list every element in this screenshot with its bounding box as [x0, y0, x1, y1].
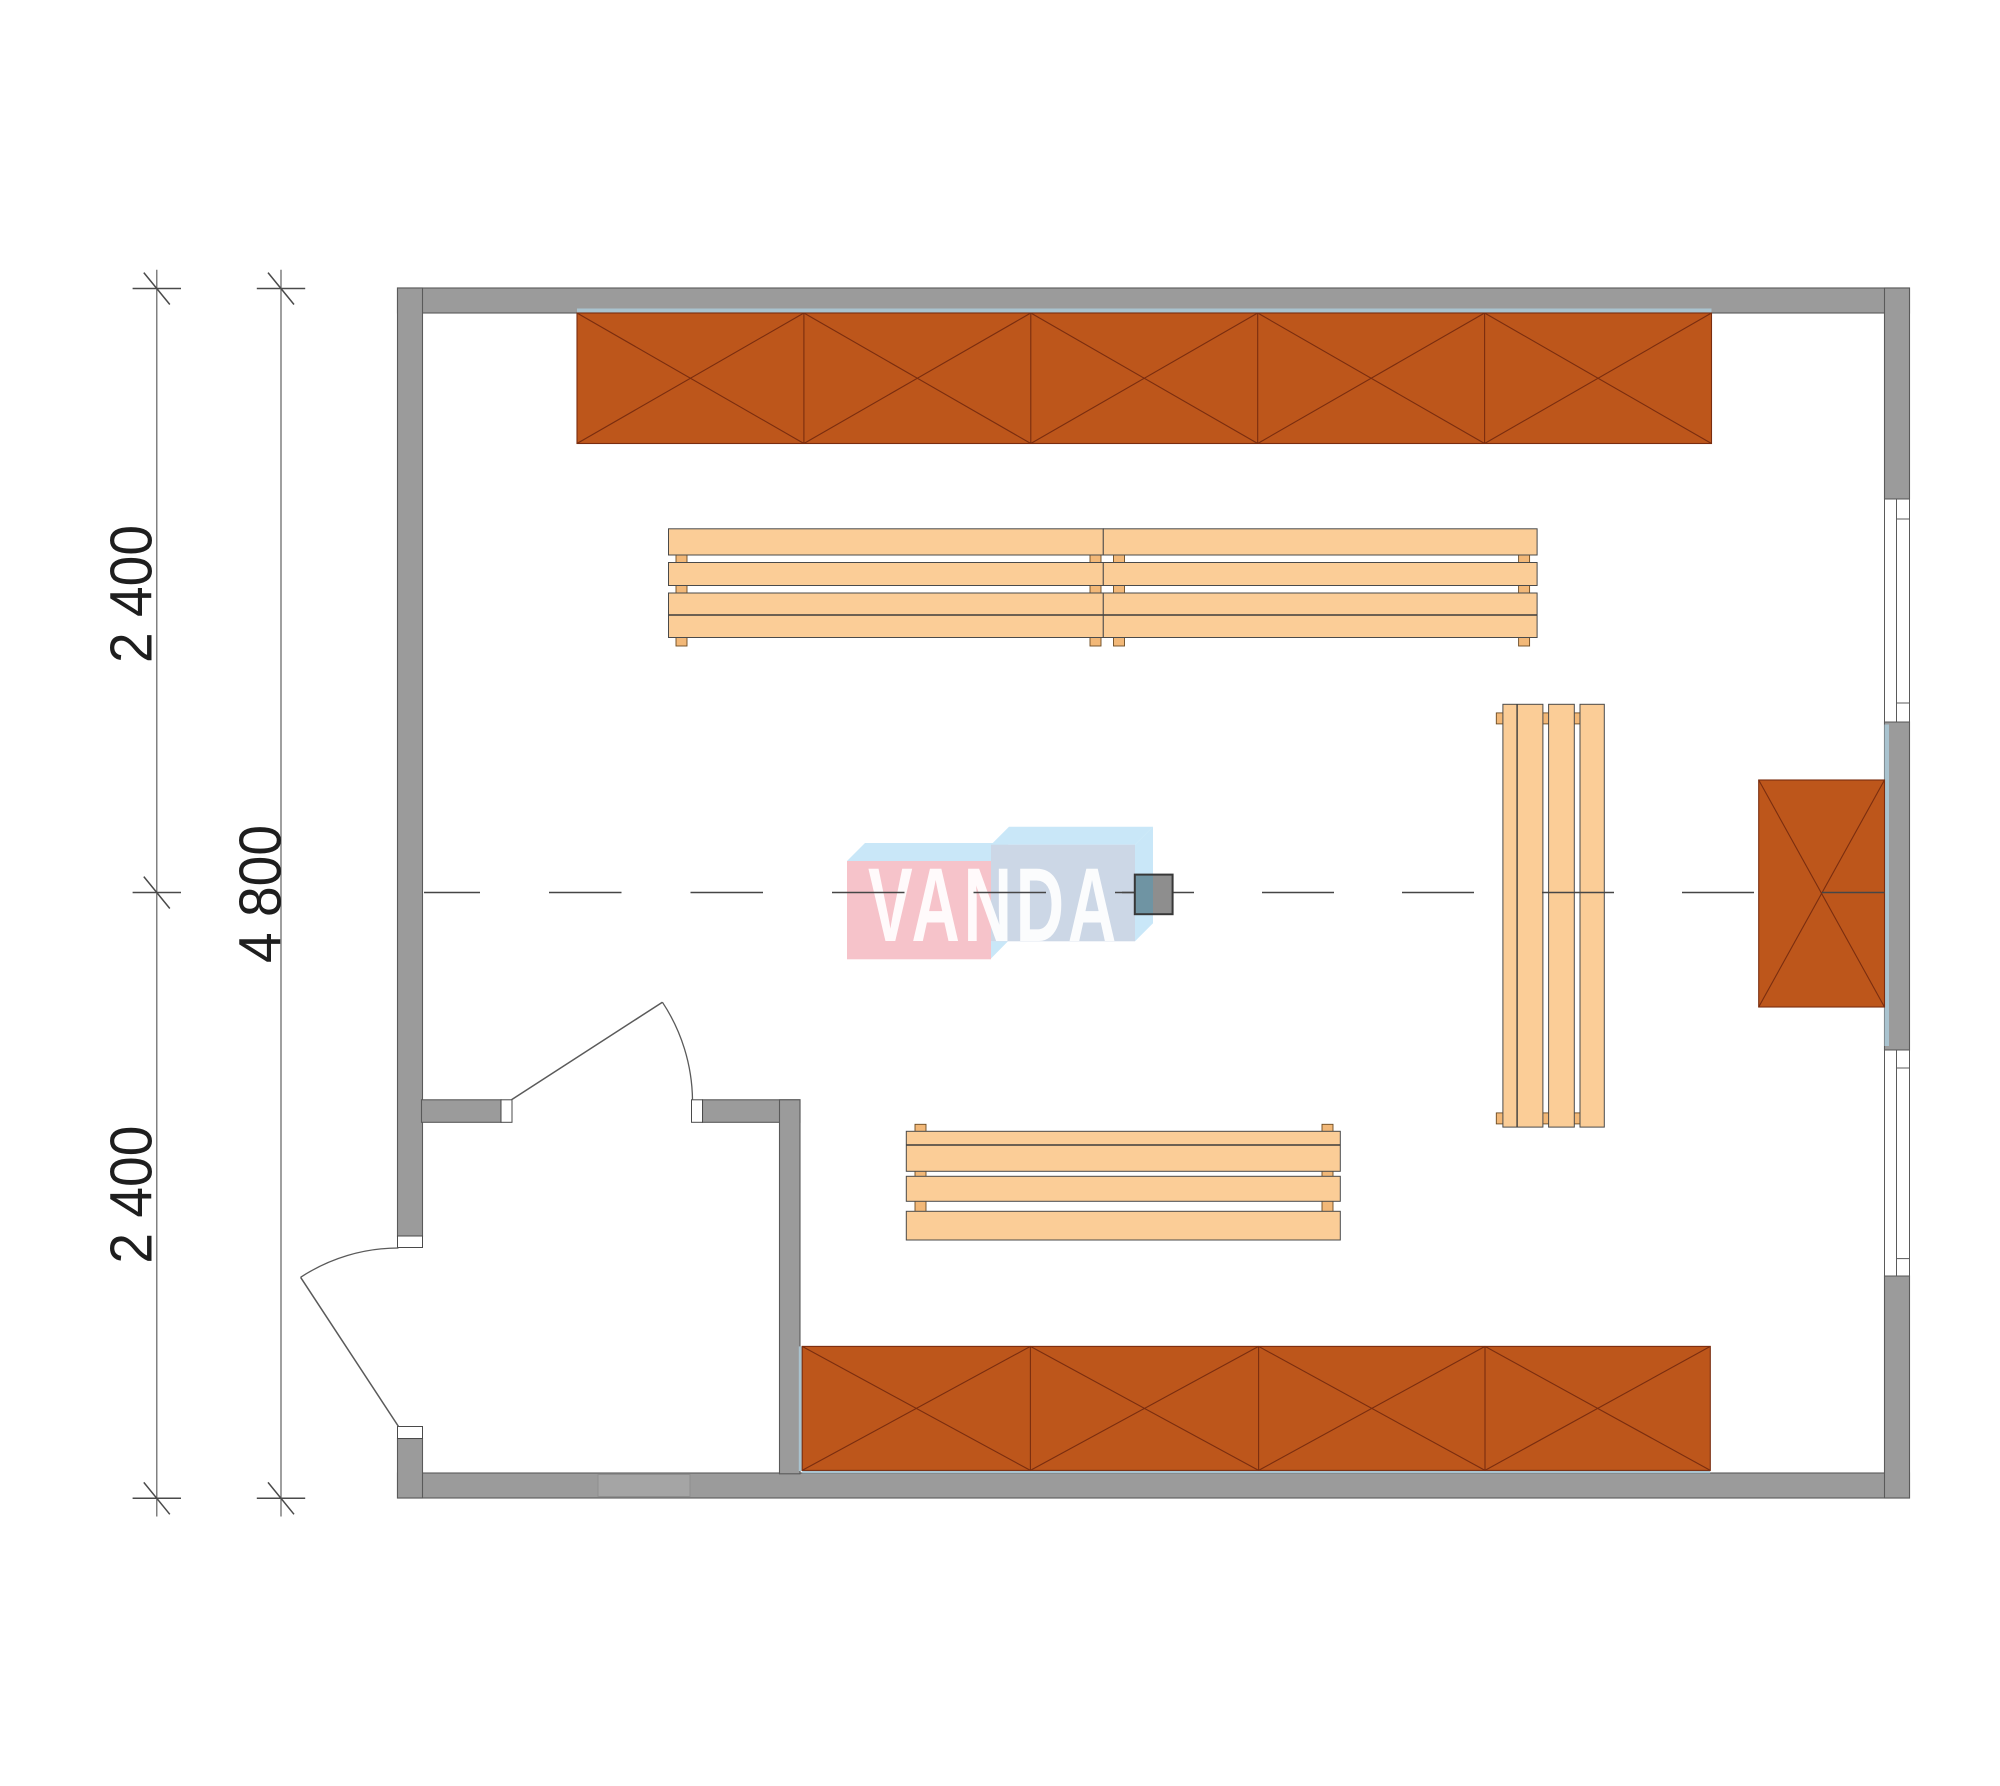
svg-text:2 400: 2 400	[98, 1126, 164, 1264]
svg-text:2 400: 2 400	[98, 525, 164, 663]
svg-text:4 800: 4 800	[228, 825, 294, 963]
svg-text:VANDA: VANDA	[868, 847, 1120, 964]
